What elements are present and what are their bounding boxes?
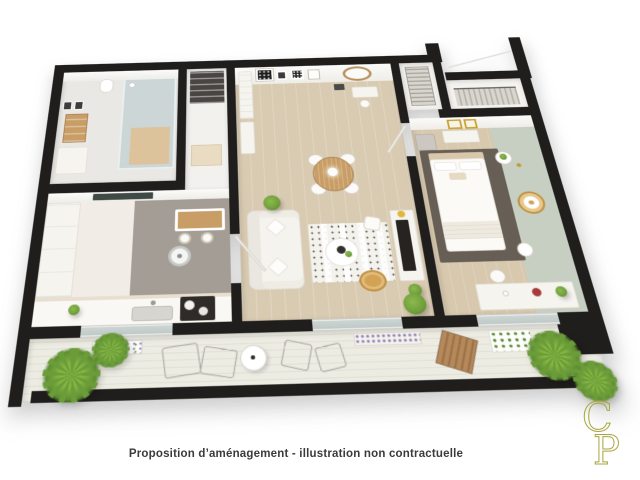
balcony-table-dot [251, 355, 255, 359]
sketched-lounger [199, 346, 238, 379]
kitchen-island [175, 208, 225, 231]
nightstand-plant [499, 154, 508, 160]
wall-bath-hall [176, 69, 187, 180]
logo-letter-p: P [593, 428, 620, 474]
wall-bottom-seg [17, 326, 81, 340]
lavender-planter [353, 331, 422, 346]
dressing-hanging-clothes [453, 86, 520, 106]
bed-pillow [458, 161, 482, 170]
pouf [363, 215, 381, 231]
hall-closet-shelves [190, 71, 225, 104]
bed-pillow [433, 162, 457, 171]
coffee-table-sprig [345, 251, 353, 257]
bed-throw [441, 221, 503, 240]
qr-art-frame [256, 69, 274, 81]
sketched-lounger [162, 342, 202, 379]
wall-living-left-b [231, 283, 243, 333]
bed-cushion [449, 172, 467, 180]
logo-monogram: C P [574, 396, 626, 476]
bathroom-shelf-unit [62, 114, 88, 143]
wall-unit-box [334, 84, 345, 90]
wall-cut-edge-line [448, 50, 513, 68]
bathroom-picture-frame [74, 101, 84, 109]
small-dark-frame [276, 71, 287, 80]
kitchen-sink [131, 306, 173, 322]
bathroom-cabinet [55, 146, 89, 174]
gold-floor-lamp [516, 163, 522, 167]
console-table [351, 86, 378, 98]
vase-yellow-flowers [397, 211, 406, 218]
hall-cabinet [191, 144, 222, 166]
qr-art-frame [291, 69, 305, 79]
sketched-chair [280, 339, 312, 371]
art-frame [307, 69, 320, 79]
bedroom-chest [442, 130, 481, 143]
living-bookcase [238, 71, 254, 119]
gold-art-frame [463, 119, 478, 129]
floorplan-3d-render [0, 0, 640, 480]
gold-art-frame [446, 119, 462, 129]
living-cabinet [240, 122, 256, 155]
desk-accessory [502, 291, 509, 297]
bathroom-picture-frame [63, 102, 73, 110]
wall-stub-up [425, 43, 442, 62]
apartment-plan [8, 52, 625, 407]
caption: Proposition d’aménagement - illustration… [0, 448, 592, 460]
bedroom-bench [414, 134, 437, 151]
shower-wood-floor [129, 127, 170, 165]
